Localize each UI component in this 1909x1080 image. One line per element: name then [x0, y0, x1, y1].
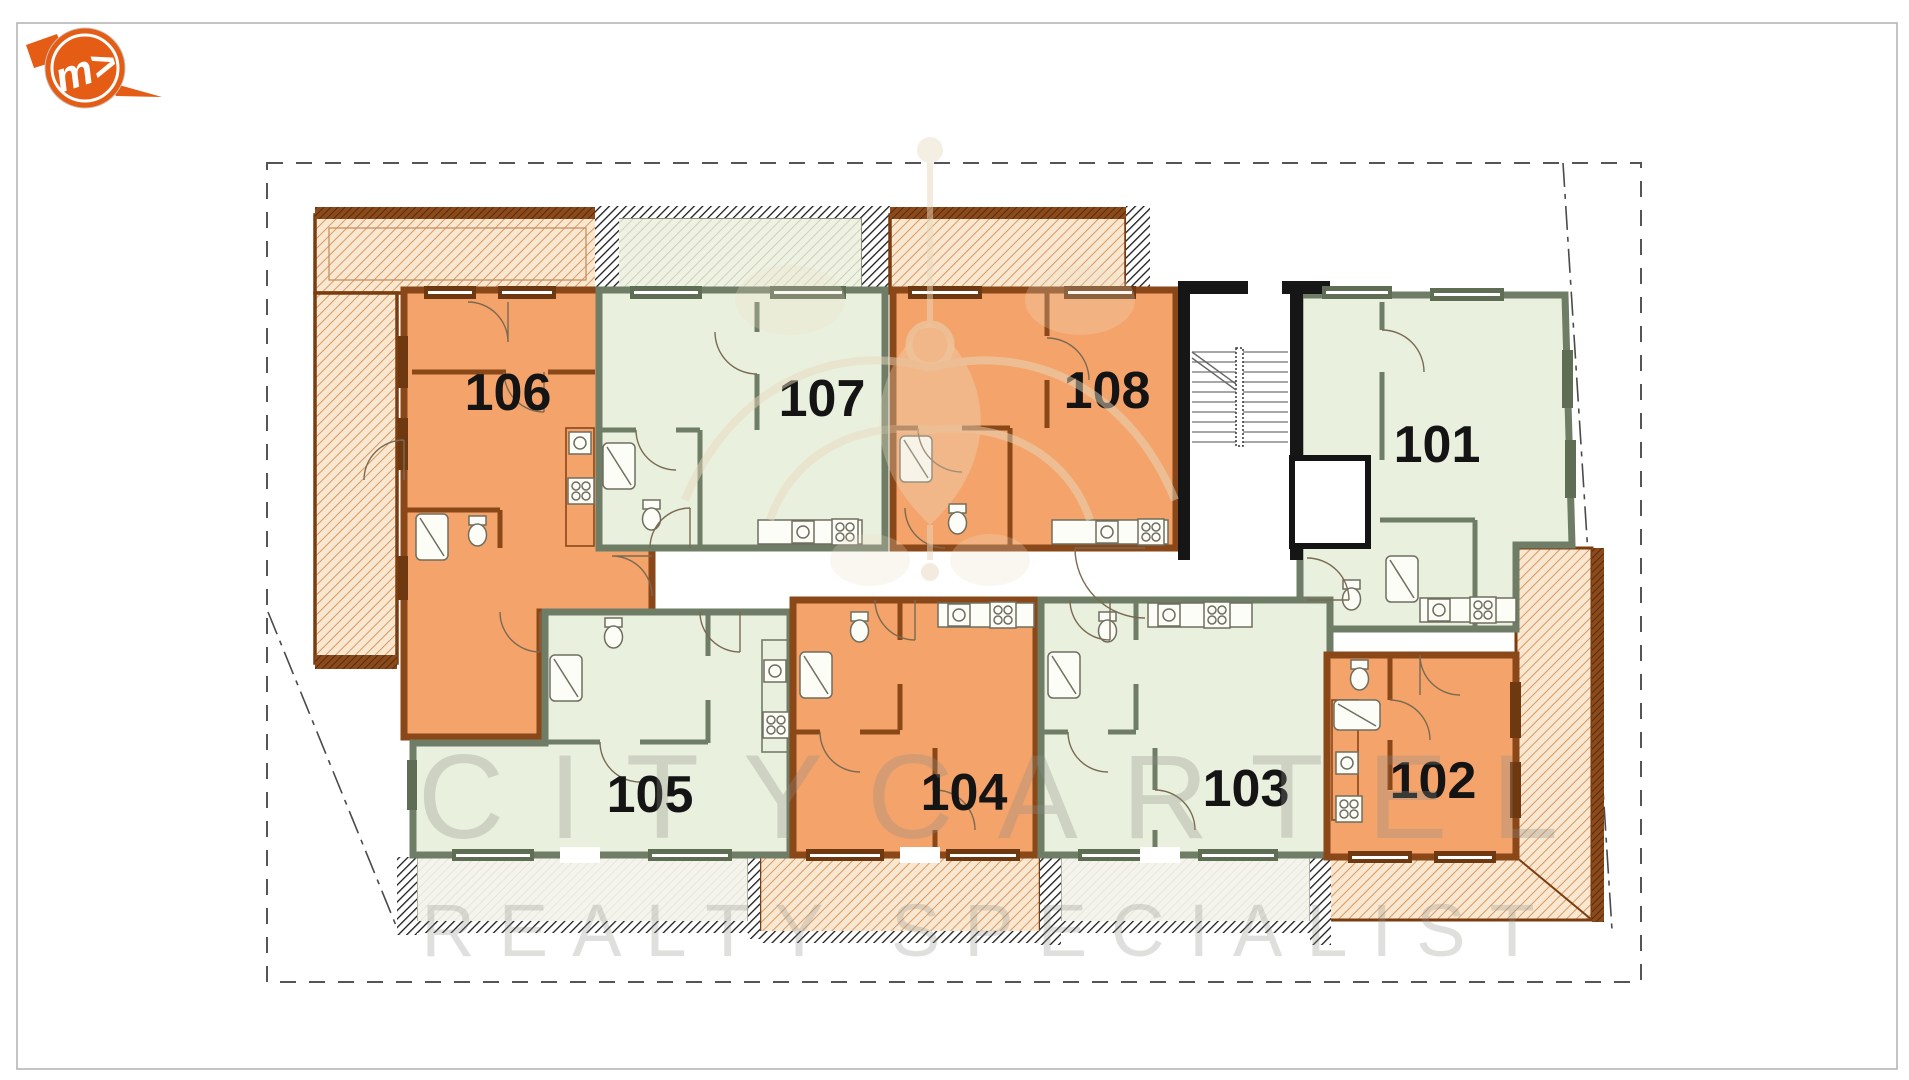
watermark-line2: REALTY SPECIALIST — [421, 889, 1558, 972]
unit-101-label: 101 — [1394, 416, 1481, 474]
watermark-line1: CITYCARTEL — [418, 730, 1603, 864]
floor-plan-page: 106 107 108 101 105 104 103 102 CITYCART… — [0, 0, 1909, 1080]
balcony-unit-107 — [595, 206, 890, 294]
elevator-shaft — [1292, 458, 1368, 546]
floor-plan-svg: 106 107 108 101 105 104 103 102 CITYCART… — [0, 0, 1909, 1080]
unit-106-label: 106 — [465, 364, 552, 422]
unit-108-label: 108 — [1064, 362, 1151, 420]
stair-handrail — [1236, 348, 1243, 446]
brand-logo: m> — [26, 28, 162, 108]
